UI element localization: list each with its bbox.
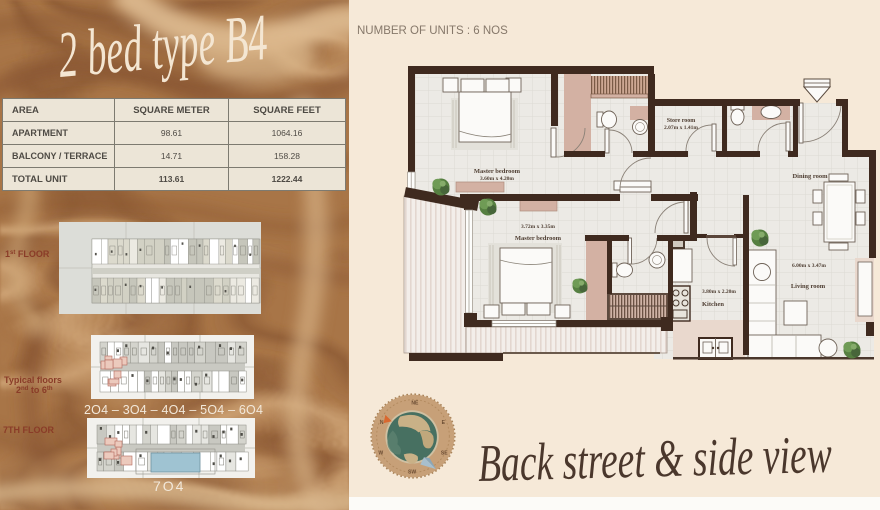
svg-text:Master bedroom: Master bedroom — [515, 235, 562, 242]
svg-text:SW: SW — [408, 470, 416, 476]
svg-text:W: W — [378, 450, 383, 456]
svg-text:Store room: Store room — [667, 118, 696, 124]
svg-text:Kitchen: Kitchen — [702, 301, 724, 308]
svg-text:Dining room: Dining room — [792, 173, 828, 180]
svg-text:N: N — [380, 420, 384, 426]
svg-text:NE: NE — [411, 401, 419, 407]
svg-text:6.00m x 3.47m: 6.00m x 3.47m — [792, 263, 826, 269]
svg-text:Living room: Living room — [791, 283, 826, 290]
svg-text:SE: SE — [441, 450, 448, 456]
svg-text:3.60m x 4.20m: 3.60m x 4.20m — [480, 176, 514, 182]
svg-text:Master bedroom: Master bedroom — [474, 168, 521, 175]
svg-text:3.80m x 2.20m: 3.80m x 2.20m — [702, 289, 736, 295]
svg-text:3.72m x 3.35m: 3.72m x 3.35m — [521, 224, 555, 230]
svg-text:2.07m x 1.41m: 2.07m x 1.41m — [664, 125, 698, 131]
